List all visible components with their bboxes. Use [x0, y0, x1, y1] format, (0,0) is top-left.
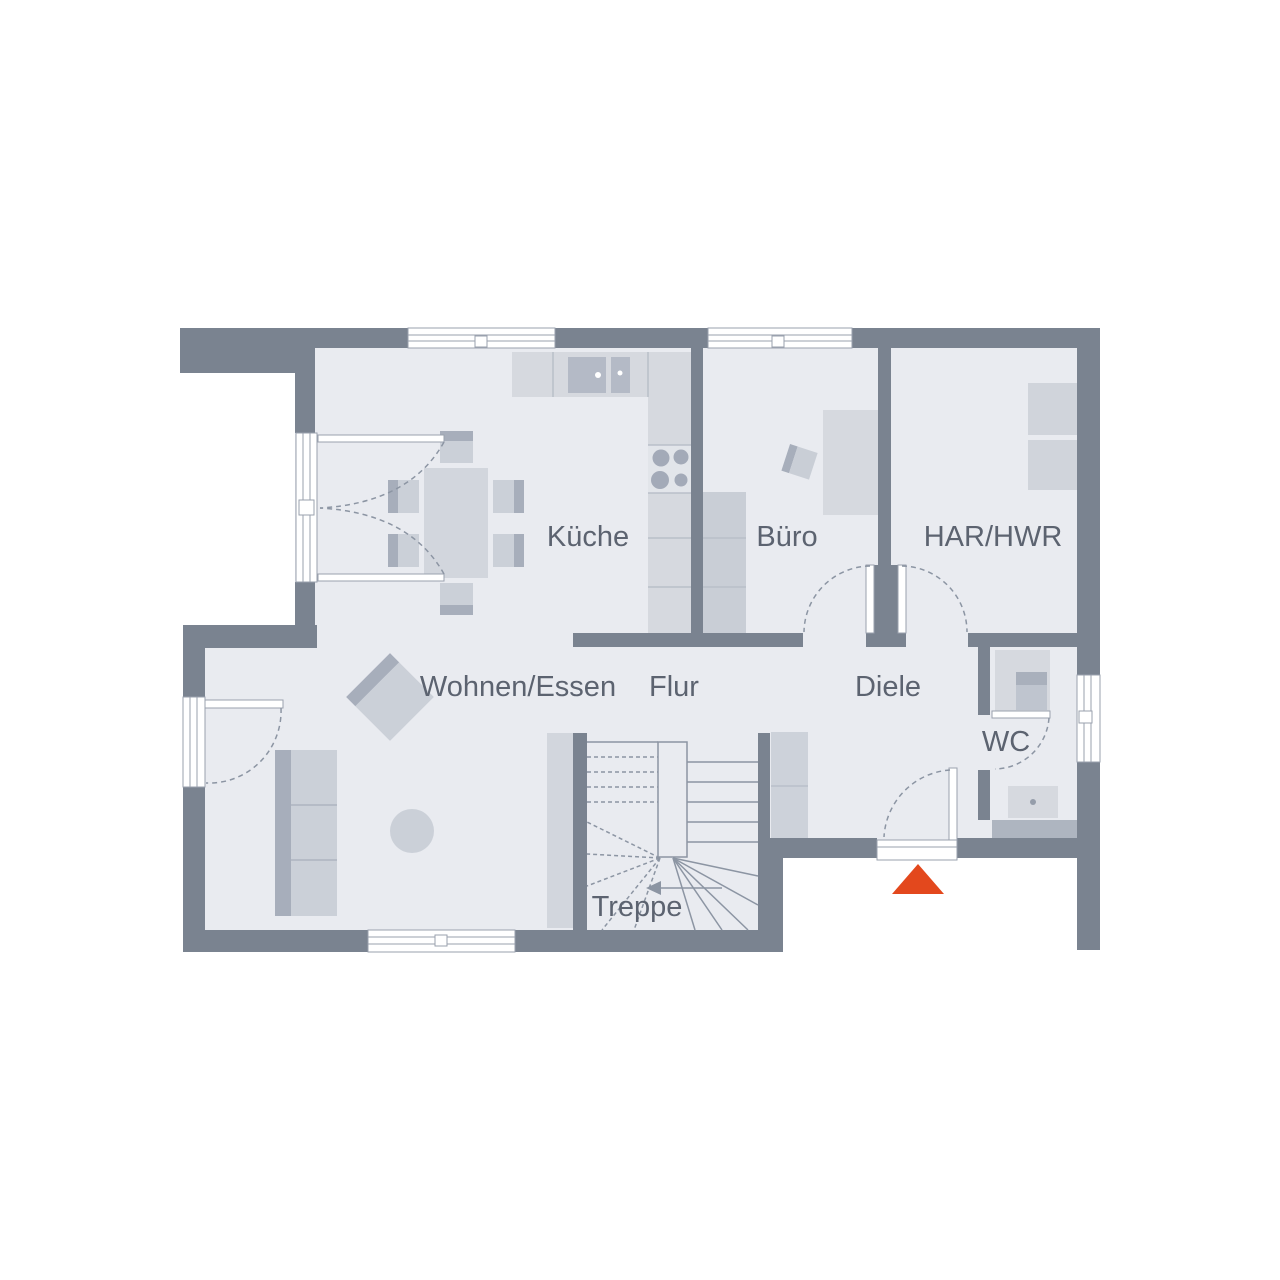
window-handle-icon — [435, 935, 447, 946]
kitchen-counter-side — [648, 397, 691, 633]
washer — [1028, 383, 1077, 435]
office-desk — [823, 410, 878, 515]
wall-left-upper — [295, 348, 315, 433]
wall-mid-stub — [866, 633, 906, 647]
room-label-treppe: Treppe — [592, 891, 683, 923]
door-leaf — [949, 768, 957, 840]
wall-mid — [573, 633, 803, 647]
wall-utility-bottom — [968, 633, 1100, 647]
burner-icon — [674, 450, 689, 465]
dining-chair — [388, 480, 419, 513]
dining-chair — [440, 431, 473, 463]
door-leaf — [318, 435, 444, 442]
burner-icon — [653, 450, 670, 467]
room-label-wc: WC — [982, 726, 1030, 758]
window-handle-icon — [772, 336, 784, 347]
door-leaf — [318, 574, 444, 581]
dining-chair — [493, 534, 524, 567]
entrance-marker-icon — [892, 864, 944, 894]
wall-door-stub — [874, 565, 898, 633]
wall-hall-bottom — [770, 838, 877, 858]
wall-step — [183, 625, 317, 648]
wall-kitchen-office — [691, 348, 703, 633]
burner-icon — [651, 471, 669, 489]
coffee-table — [390, 809, 434, 853]
window — [408, 328, 555, 348]
wall-wc-left — [978, 770, 990, 820]
toilet-drain-icon — [1030, 799, 1036, 805]
wall-office-utility — [878, 348, 891, 565]
office-shelf — [703, 492, 746, 633]
window — [368, 930, 515, 952]
dryer — [1028, 440, 1077, 490]
window — [708, 328, 852, 348]
wall-stair-right — [758, 733, 770, 838]
door-leaf — [898, 565, 906, 633]
dining-chair — [493, 480, 524, 513]
wall-wc-lower-band — [992, 820, 1077, 838]
floor-plan-drawing: Küche Büro HAR/HWR Wohnen/Essen Flur Die… — [0, 0, 1280, 1280]
dining-chair — [440, 583, 473, 615]
window — [1077, 675, 1100, 762]
sideboard — [547, 733, 573, 928]
room-label-kueche: Küche — [547, 521, 629, 553]
room-label-wohnen-essen: Wohnen/Essen — [420, 671, 616, 703]
sink-drain-icon — [595, 372, 601, 378]
floor-plan-page: Küche Büro HAR/HWR Wohnen/Essen Flur Die… — [0, 0, 1280, 1280]
wall-left-upper — [295, 582, 315, 625]
wall-stair-right-block — [758, 838, 783, 952]
wall-right — [1077, 348, 1100, 950]
wall-left-lower — [183, 787, 205, 930]
room-label-flur: Flur — [649, 671, 699, 703]
door-leaf — [992, 711, 1050, 718]
wall-stair-left — [573, 733, 587, 930]
room-label-diele: Diele — [855, 671, 921, 703]
sink-drain-icon — [618, 371, 623, 376]
wall-wc-left — [978, 647, 990, 715]
door-leaf — [866, 565, 874, 633]
wall-hall-bottom — [957, 838, 1100, 858]
stair-core — [658, 742, 687, 857]
burner-icon — [675, 474, 688, 487]
window-handle-icon — [475, 336, 487, 347]
wc-basin-tap — [1016, 672, 1047, 685]
dining-table — [424, 468, 488, 578]
room-label-har-hwr: HAR/HWR — [924, 521, 1063, 553]
sofa — [275, 750, 337, 916]
wall-left-lower — [183, 648, 205, 697]
window-handle-icon — [299, 500, 314, 515]
window-handle-icon — [1079, 711, 1092, 723]
door-leaf — [205, 700, 283, 708]
hall-wardrobe — [771, 732, 808, 838]
room-label-buero: Büro — [756, 521, 817, 553]
wall-corner-block — [180, 328, 295, 373]
